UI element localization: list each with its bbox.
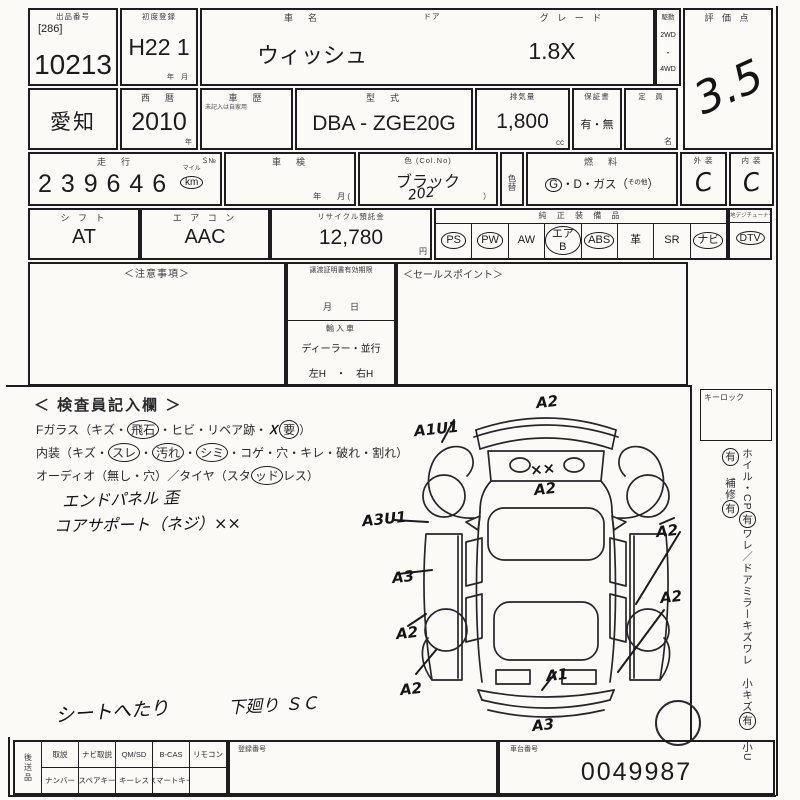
damage-marker: A2 — [655, 521, 679, 541]
accessory-cell: キーレス — [116, 768, 153, 793]
accessory-cell: スマートキー — [153, 768, 190, 793]
page-border-right — [776, 6, 778, 796]
damage-marker: A1U1 — [413, 418, 459, 441]
auction-sheet: 出品番号 [286] 10213 初度登録 H22 1 年 月 車 名 ドア グ… — [0, 0, 800, 800]
accessories-rows: 取説ナビ取説QM/SDB-CASリモコン ナンバースペアキーキーレススマートキー — [42, 742, 226, 793]
registration-number-label: 登録番号 — [238, 744, 266, 754]
accessory-cell: 取説 — [42, 742, 79, 767]
right-column-term: 補修 — [723, 466, 738, 501]
right-column-term: 小キズ — [740, 678, 755, 713]
damage-marker: ×× — [529, 459, 556, 480]
damage-marker: A3 — [531, 715, 555, 735]
accessories-label: 後送品 — [15, 742, 42, 793]
accessories-row-1: 取説ナビ取説QM/SDB-CASリモコン — [42, 742, 226, 768]
chassis-number-label: 車台番号 — [510, 744, 538, 754]
accessory-cell: QM/SD — [116, 742, 153, 767]
damage-marker: A2 — [535, 392, 559, 412]
key-lock-label: キーロック — [704, 392, 744, 403]
accessory-cell — [190, 768, 226, 793]
damage-markers: A2A1U1××A2A3U1A2A3A2A2A1A2A3 — [0, 0, 800, 800]
accessory-cell: B-CAS — [153, 742, 190, 767]
accessories-row-2: ナンバースペアキーキーレススマートキー — [42, 768, 226, 793]
damage-marker: A3 — [391, 567, 415, 587]
right-column-term: 有 — [722, 448, 739, 466]
accessory-cell: ナンバー — [42, 768, 79, 793]
accessories-table: 後送品 取説ナビ取説QM/SDB-CASリモコン ナンバースペアキーキーレススマ… — [13, 740, 228, 795]
damage-marker: A1 — [545, 665, 569, 685]
accessory-cell: ナビ取説 — [79, 742, 116, 767]
right-column-notes: ホイル・CP有ワレ／ドアミラーキズワレ 小キズ有 小U有 補修有 — [722, 448, 756, 778]
page-border-bottom — [8, 795, 776, 797]
damage-marker: A2 — [659, 587, 683, 607]
damage-marker: A2 — [395, 623, 419, 643]
registration-number-box: 登録番号 — [228, 740, 498, 795]
right-column-term: ワレ／ドアミラーキズワレ — [740, 528, 755, 678]
chassis-number-box: 車台番号 0049987 — [498, 740, 775, 795]
accessory-cell: スペアキー — [79, 768, 116, 793]
right-column-term: 有 — [722, 500, 739, 518]
damage-marker: A2 — [399, 679, 423, 699]
accessory-cell: リモコン — [190, 742, 226, 767]
damage-marker: A2 — [533, 479, 557, 499]
key-lock-box: キーロック — [700, 389, 772, 441]
right-column-term: ホイル・CP — [740, 448, 755, 511]
chassis-number-value: 0049987 — [500, 758, 773, 787]
page-border-left — [8, 737, 10, 795]
right-column-term: 有 — [739, 712, 756, 730]
right-column-term: 有 — [739, 511, 756, 529]
damage-marker: A3U1 — [361, 508, 407, 531]
